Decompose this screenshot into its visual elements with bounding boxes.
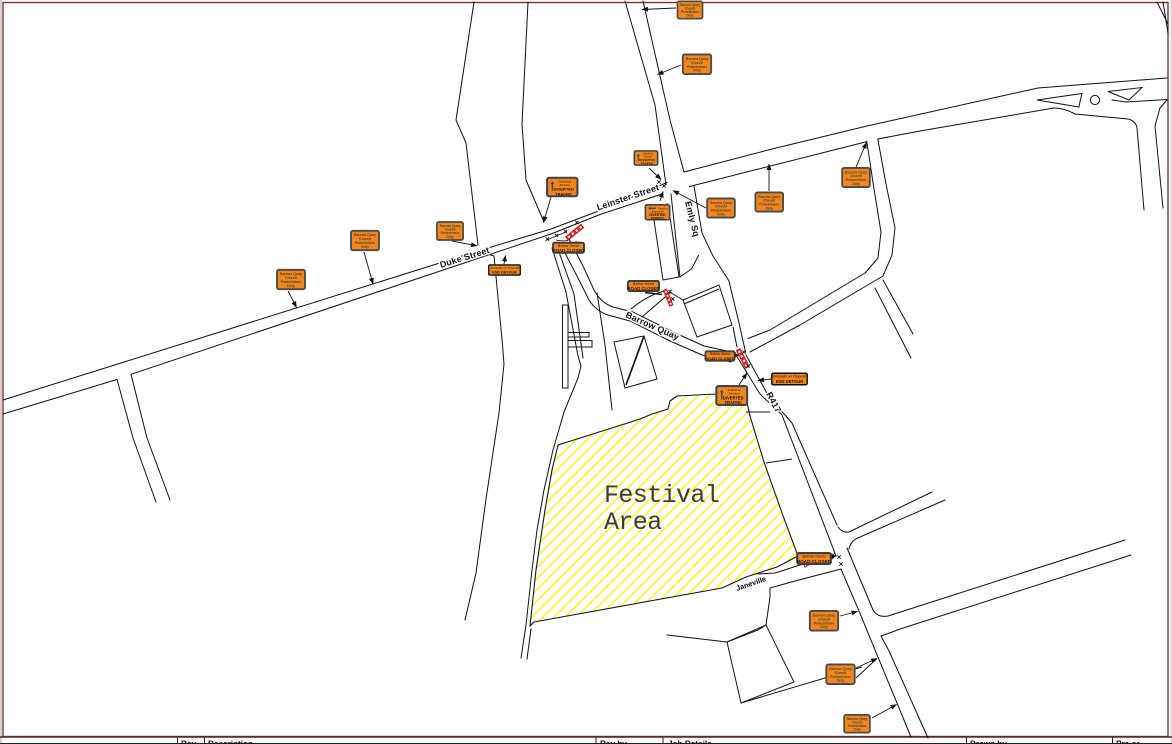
svg-text:Rev: Rev — [181, 740, 196, 744]
svg-text:Festival: Festival — [604, 481, 719, 510]
svg-text:Pre-ar: Pre-ar — [1116, 740, 1140, 744]
svg-text:Rev by: Rev by — [600, 740, 627, 744]
svg-text:Drawn by: Drawn by — [970, 740, 1007, 744]
svg-text:Job Details: Job Details — [668, 740, 712, 744]
svg-text:Description: Description — [208, 740, 253, 744]
svg-text:Area: Area — [604, 508, 662, 537]
